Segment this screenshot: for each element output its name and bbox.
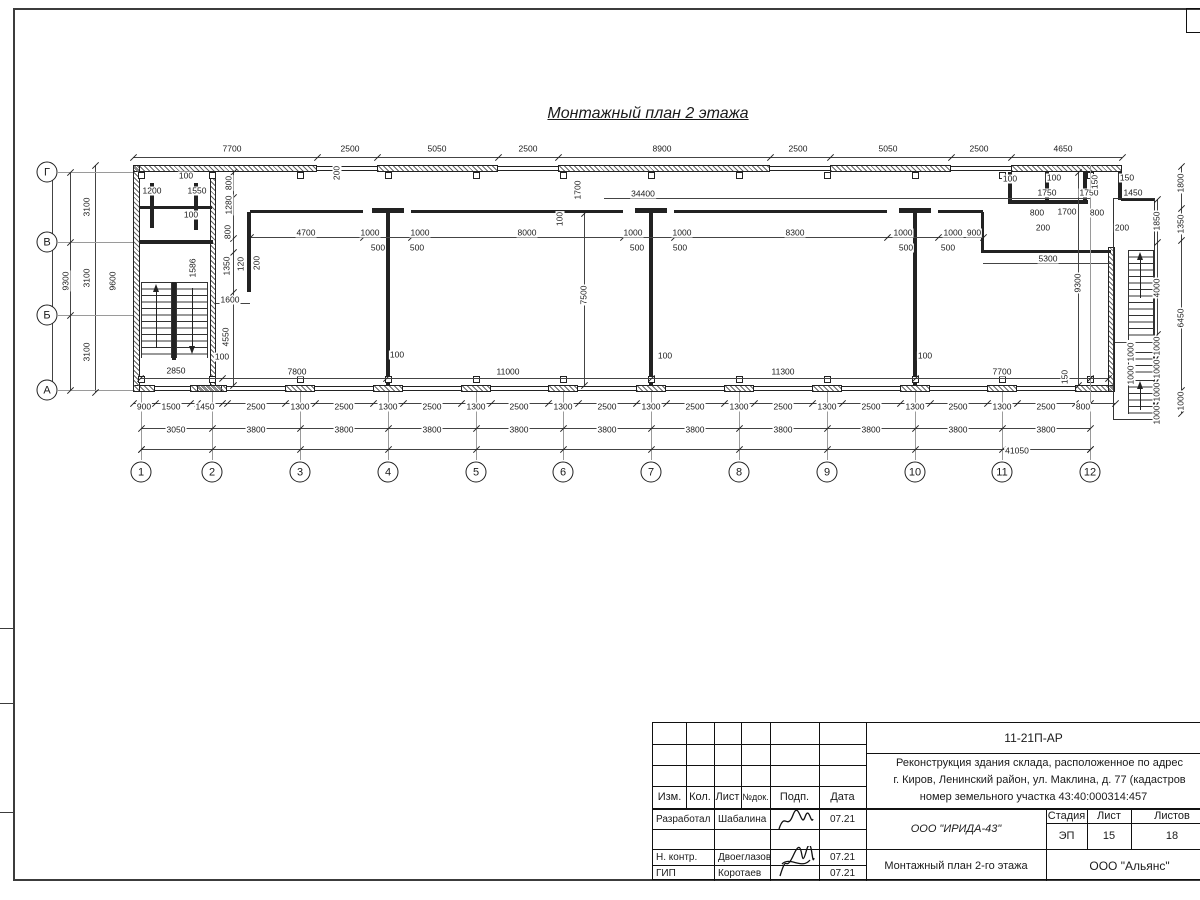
- dim-label: 5050: [878, 145, 899, 154]
- tb-name-2: Двоеглазов: [715, 850, 773, 865]
- window-segment: [315, 386, 373, 391]
- tb-col-list: Лист: [714, 786, 741, 808]
- dim-line: [1181, 166, 1182, 413]
- dim-label: 7800: [287, 368, 308, 377]
- column-mark: [648, 172, 655, 179]
- grid-bubble-col-4: 4: [378, 462, 399, 483]
- dim-label: 2850: [166, 367, 187, 376]
- dim-label: 100: [556, 211, 565, 227]
- dim-label: 1350: [1177, 214, 1186, 235]
- dim-label: 100: [178, 172, 194, 181]
- dim-label: 8000: [517, 229, 538, 238]
- column-mark: [824, 172, 831, 179]
- grid-bubble-row-В: В: [37, 232, 58, 253]
- dim-label: 2500: [597, 403, 618, 412]
- signature-1: [771, 808, 819, 833]
- format-stamp-box: [1186, 8, 1200, 33]
- dim-label: 3800: [246, 426, 267, 435]
- dim-label: 1450: [195, 403, 216, 412]
- dim-label: 500: [672, 244, 688, 253]
- dim-label: 1700: [574, 180, 583, 201]
- dim-line: [604, 198, 1090, 199]
- partition-wall: [1008, 200, 1088, 204]
- window-segment: [1017, 386, 1075, 391]
- dim-label: 150: [1091, 174, 1100, 190]
- dim-label: 1700: [1057, 208, 1078, 217]
- dim-label: 2500: [773, 403, 794, 412]
- dim-label: 800: [1075, 403, 1091, 412]
- window-segment: [155, 386, 190, 391]
- dim-label: 900: [966, 229, 982, 238]
- dim-label: 2500: [518, 145, 539, 154]
- dim-label: 1000: [1153, 382, 1162, 403]
- dim-label: 2500: [509, 403, 530, 412]
- grid-bubble-col-11: 11: [992, 462, 1013, 483]
- dim-label: 1000: [893, 229, 914, 238]
- wall-segment: [1011, 165, 1122, 172]
- plan-canvas: Монтажный план 2 этажа 77002500505025008…: [0, 0, 1200, 900]
- tb-role-3: ГИП: [653, 866, 717, 881]
- tb-desc-line1: Реконструкция здания склада, расположенн…: [866, 754, 1200, 772]
- tb-sheets-label: Листов: [1131, 808, 1200, 823]
- tb-desc-line3: номер земельного участка 43:40:000314:45…: [866, 788, 1200, 806]
- dim-label: 2500: [969, 145, 990, 154]
- dim-label: 4700: [296, 229, 317, 238]
- dim-label: 1000: [672, 229, 693, 238]
- window-segment: [754, 386, 812, 391]
- grid-bubble-col-7: 7: [641, 462, 662, 483]
- dim-label: 100: [1046, 174, 1062, 183]
- dim-label: 1450: [1123, 189, 1144, 198]
- dim-label: 11000: [495, 368, 520, 377]
- dim-label: 200: [1035, 224, 1051, 233]
- dim-label: 5300: [1038, 255, 1059, 264]
- grid-bubble-col-6: 6: [553, 462, 574, 483]
- dim-label: 1300: [817, 403, 838, 412]
- stair-arrow-icon: [192, 288, 193, 346]
- drawing-title: Монтажный план 2 этажа: [547, 105, 748, 123]
- dim-label: 1000: [1127, 365, 1136, 386]
- dim-line: [133, 157, 1122, 158]
- dim-label: 1280: [225, 195, 234, 216]
- tb-col-podp: Подп.: [770, 786, 819, 808]
- dim-label: 2500: [685, 403, 706, 412]
- partition-wall: [140, 240, 213, 244]
- dim-label: 4000: [1153, 278, 1162, 299]
- dim-label: 800: [1029, 209, 1045, 218]
- dim-label: 500: [409, 244, 425, 253]
- column-mark: [385, 172, 392, 179]
- dim-label: 1300: [290, 403, 311, 412]
- grid-bubble-col-3: 3: [290, 462, 311, 483]
- grid-bubble-col-10: 10: [905, 462, 926, 483]
- dim-label: 100: [1002, 175, 1018, 184]
- stair-arrow-icon: [1137, 381, 1143, 389]
- dim-label: 2500: [246, 403, 267, 412]
- column-mark: [912, 172, 919, 179]
- window-segment: [930, 386, 988, 391]
- dim-label: 7700: [992, 368, 1013, 377]
- dim-label: 1000: [410, 229, 431, 238]
- window-segment: [666, 386, 724, 391]
- tb-sheet-value: 15: [1087, 823, 1131, 849]
- wall-pier: [285, 385, 315, 392]
- tb-date-2: 07.21: [819, 850, 866, 865]
- tb-col-data: Дата: [819, 786, 866, 808]
- dim-label: 1000: [1153, 405, 1162, 426]
- window-segment: [227, 386, 285, 391]
- margin-tick: [0, 812, 13, 813]
- dim-label: 500: [940, 244, 956, 253]
- grid-bubble-row-Г: Г: [37, 162, 58, 183]
- column-mark: [209, 172, 216, 179]
- dim-label: 4550: [222, 327, 231, 348]
- wall-pier: [900, 385, 930, 392]
- dim-label: 1000: [360, 229, 381, 238]
- tb-name-3: Коротаев: [715, 866, 773, 881]
- stair-arrow-icon: [153, 284, 159, 292]
- dim-label: 4650: [1053, 145, 1074, 154]
- tb-role-2: Н. контр.: [653, 850, 717, 865]
- dim-label: 1200: [142, 187, 163, 196]
- dim-label: 200: [1114, 224, 1130, 233]
- dim-label: 9300: [62, 271, 71, 292]
- stair-arrow-icon: [1137, 252, 1143, 260]
- dim-label: 1850: [1153, 211, 1162, 232]
- wall-segment: [830, 165, 951, 172]
- tb-stage-value: ЭП: [1046, 823, 1087, 849]
- margin-tick: [0, 703, 13, 704]
- wall-pier: [461, 385, 491, 392]
- window-segment: [491, 386, 549, 391]
- tb-col-izm: Изм.: [653, 786, 686, 808]
- dim-label: 100: [389, 351, 405, 360]
- column-mark: [736, 172, 743, 179]
- dim-label: 3800: [597, 426, 618, 435]
- dim-label: 120: [237, 256, 246, 272]
- dim-label: 100: [657, 352, 673, 361]
- wall-segment: [133, 165, 317, 172]
- dim-label: 2500: [948, 403, 969, 412]
- frame-left: [13, 8, 15, 880]
- dim-label: 1350: [223, 256, 232, 277]
- dim-label: 800: [224, 224, 233, 240]
- stair-arrow-icon: [1140, 258, 1141, 298]
- column-mark: [297, 172, 304, 179]
- dim-line: [140, 378, 1108, 379]
- grid-bubble-col-8: 8: [729, 462, 750, 483]
- window-segment: [317, 166, 377, 171]
- dim-label: 1000: [1127, 342, 1136, 363]
- dim-label: 41050: [1004, 447, 1030, 456]
- dim-line: [52, 172, 53, 390]
- margin-tick: [0, 628, 13, 629]
- dim-label: 200: [333, 165, 342, 181]
- wall-pier: [636, 385, 666, 392]
- dim-label: 3100: [83, 197, 92, 218]
- dim-label: 500: [898, 244, 914, 253]
- window-segment: [498, 166, 558, 171]
- dim-label: 900: [136, 403, 152, 412]
- grid-bubble-row-А: А: [37, 380, 58, 401]
- tb-date-1: 07.21: [819, 810, 866, 829]
- wall-pier: [548, 385, 578, 392]
- frame-top: [13, 8, 1200, 10]
- dim-label: 1000: [623, 229, 644, 238]
- window-segment: [770, 166, 830, 171]
- partition-wall: [247, 212, 251, 292]
- window-segment: [578, 386, 636, 391]
- tb-date-3: 07.21: [819, 866, 866, 881]
- title-block: Изм. Кол. Лист №док. Подп. Дата 11-21П-А…: [652, 722, 1200, 880]
- dim-label: 3800: [773, 426, 794, 435]
- dim-line: [95, 165, 96, 392]
- dim-label: 3800: [948, 426, 969, 435]
- stair-arrow-icon: [1140, 386, 1141, 410]
- dim-label: 8300: [785, 229, 806, 238]
- grid-bubble-col-2: 2: [202, 462, 223, 483]
- dim-label: 200: [253, 255, 262, 271]
- dim-label: 2500: [334, 403, 355, 412]
- dim-label: 100: [183, 211, 199, 220]
- dim-label: 1300: [905, 403, 926, 412]
- dim-label: 3800: [334, 426, 355, 435]
- dim-label: 3100: [83, 268, 92, 289]
- stair-divider: [172, 282, 176, 360]
- dim-label: 2500: [340, 145, 361, 154]
- grid-axis-line: [1090, 165, 1091, 392]
- dim-label: 11300: [770, 368, 795, 377]
- dim-label: 800: [225, 175, 234, 191]
- partition-wall: [372, 208, 404, 213]
- tb-sheets-value: 18: [1131, 823, 1200, 849]
- wall-pier: [373, 385, 403, 392]
- partition-wall: [899, 208, 931, 213]
- dim-label: 9300: [1074, 273, 1083, 294]
- dim-label: 1800: [1177, 173, 1186, 194]
- wall-pier: [724, 385, 754, 392]
- stair-arrow-icon: [189, 346, 195, 354]
- dim-label: 1300: [466, 403, 487, 412]
- drawing-sheet: { "title": "Монтажный план 2 этажа", "gr…: [0, 0, 1200, 900]
- dim-label: 1550: [187, 187, 208, 196]
- dim-label: 150: [1061, 369, 1070, 385]
- dim-label: 3800: [1036, 426, 1057, 435]
- dim-label: 800: [1089, 209, 1105, 218]
- grid-bubble-row-Б: Б: [37, 305, 58, 326]
- dim-line: [141, 449, 1090, 450]
- wall-segment: [377, 165, 498, 172]
- stair-arrow-icon: [156, 290, 157, 348]
- tb-col-kol: Кол.: [686, 786, 714, 808]
- wall-pier: [197, 385, 227, 392]
- dim-label: 7700: [222, 145, 243, 154]
- dim-label: 1300: [553, 403, 574, 412]
- tb-org1: ООО "ИРИДА-43": [866, 810, 1046, 848]
- dim-label: 3800: [422, 426, 443, 435]
- tb-desc-line2: г. Киров, Ленинский район, ул. Маклина, …: [866, 771, 1200, 789]
- dim-label: 500: [370, 244, 386, 253]
- dim-label: 9600: [109, 271, 118, 292]
- window-segment: [403, 386, 461, 391]
- partition-wall: [674, 210, 887, 213]
- partition-wall: [938, 210, 983, 213]
- dim-label: 1000: [1153, 359, 1162, 380]
- tb-doc-code: 11-21П-АР: [866, 723, 1200, 753]
- tb-name-1: Шабалина: [715, 810, 773, 829]
- partition-wall: [250, 210, 363, 213]
- wall-pier: [987, 385, 1017, 392]
- dim-label: 3800: [861, 426, 882, 435]
- dim-label: 1600: [220, 296, 241, 305]
- wall-pier: [812, 385, 842, 392]
- dim-label: 1000: [1177, 391, 1186, 412]
- dim-label: 3100: [83, 342, 92, 363]
- tb-drawing-name: Монтажный план 2-го этажа: [866, 850, 1046, 881]
- dim-label: 3800: [509, 426, 530, 435]
- dim-label: 1000: [943, 229, 964, 238]
- dim-label: 500: [629, 244, 645, 253]
- column-mark: [473, 172, 480, 179]
- tb-col-ndoc: №док.: [741, 786, 770, 808]
- dim-label: 6450: [1177, 308, 1186, 329]
- dim-label: 1300: [729, 403, 750, 412]
- window-segment: [951, 166, 1011, 171]
- dim-label: 2500: [1036, 403, 1057, 412]
- tb-sheet-label: Лист: [1087, 808, 1131, 823]
- tb-org2: ООО "Альянс": [1046, 850, 1200, 881]
- dim-label: 2500: [861, 403, 882, 412]
- dim-label: 8900: [652, 145, 673, 154]
- tb-role-1: Разработал: [653, 810, 717, 829]
- dim-label: 1586: [189, 258, 198, 279]
- dim-label: 100: [214, 353, 230, 362]
- dim-label: 1500: [161, 403, 182, 412]
- dim-label: 34400: [630, 190, 656, 199]
- tb-stage-label: Стадия: [1046, 808, 1087, 823]
- dim-label: 3800: [685, 426, 706, 435]
- dim-label: 5050: [427, 145, 448, 154]
- grid-bubble-col-5: 5: [466, 462, 487, 483]
- grid-bubble-col-1: 1: [131, 462, 152, 483]
- window-segment: [842, 386, 900, 391]
- dim-label: 1300: [378, 403, 399, 412]
- dim-label: 1300: [641, 403, 662, 412]
- partition-wall: [140, 206, 212, 209]
- dim-label: 1750: [1037, 189, 1058, 198]
- wall-segment: [133, 165, 140, 392]
- signature-2: [771, 845, 819, 881]
- dim-label: 1000: [1153, 336, 1162, 357]
- column-mark: [560, 172, 567, 179]
- dim-label: 3050: [166, 426, 187, 435]
- dim-label: 150: [1119, 174, 1135, 183]
- dim-label: 7500: [580, 285, 589, 306]
- stair-flight: [1128, 250, 1154, 340]
- dim-label: 2500: [788, 145, 809, 154]
- dim-label: 100: [917, 352, 933, 361]
- grid-bubble-col-12: 12: [1080, 462, 1101, 483]
- wall-segment: [558, 165, 770, 172]
- partition-wall: [649, 213, 653, 385]
- dim-label: 1300: [992, 403, 1013, 412]
- partition-wall: [411, 210, 623, 213]
- grid-bubble-col-9: 9: [817, 462, 838, 483]
- partition-wall: [635, 208, 667, 213]
- dim-label: 2500: [422, 403, 443, 412]
- column-mark: [138, 172, 145, 179]
